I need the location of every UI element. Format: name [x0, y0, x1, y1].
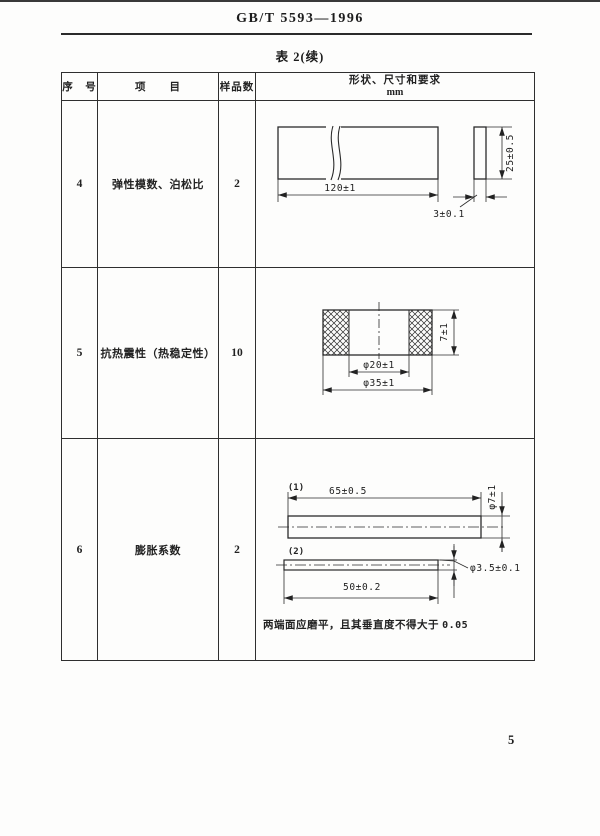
- header-cell-no: 序 号: [62, 73, 98, 101]
- standard-document-page: { "page": { "doc_number": "GB/T 5593—199…: [0, 0, 600, 836]
- header-rule: [61, 33, 532, 35]
- page-number: 5: [508, 733, 514, 748]
- table-title: 表 2(续): [0, 46, 600, 65]
- drawing-cell: (1) 65±0.5 φ7±1 (2): [256, 439, 535, 661]
- drawing-note: 两端面应磨平，且其垂直度不得大于 0.05: [263, 617, 468, 632]
- specimen-drawing-ring-section: 7±1 φ20±1 φ35±1: [256, 269, 534, 438]
- row-no: 5: [62, 268, 98, 439]
- row-item: 弹性模数、泊松比: [98, 101, 219, 268]
- table-row: 5 抗热震性（热稳定性） 10: [62, 268, 535, 439]
- dimension-label-thickness: 3±0.1: [433, 209, 465, 220]
- dimension-label-fig2-length: 50±0.2: [343, 582, 381, 593]
- specimen-drawing-bar: 120±1 25±0.5 3±0.1: [256, 102, 534, 267]
- dimension-label-length: 120±1: [324, 183, 356, 194]
- row-item: 膨胀系数: [98, 439, 219, 661]
- drawing-cell: 120±1 25±0.5 3±0.1: [256, 101, 535, 268]
- header-cell-shape: 形状、尺寸和要求 mm: [256, 73, 535, 101]
- figure-label-2: (2): [288, 547, 304, 557]
- dimension-label-fig1-length: 65±0.5: [329, 486, 367, 497]
- header-unit-label: mm: [256, 87, 534, 100]
- dimension-label-fig1-diameter: φ7±1: [487, 484, 498, 509]
- scan-edge-artifact: [0, 0, 600, 2]
- row-no: 4: [62, 101, 98, 268]
- header-shape-label: 形状、尺寸和要求: [256, 74, 534, 87]
- header-cell-item: 项 目: [98, 73, 219, 101]
- row-samples: 10: [219, 268, 256, 439]
- row-no: 6: [62, 439, 98, 661]
- row-item: 抗热震性（热稳定性）: [98, 268, 219, 439]
- drawing-note-value: 0.05: [442, 620, 468, 631]
- drawing-note-text: 两端面应磨平，且其垂直度不得大于: [263, 620, 439, 631]
- figure-label-1: (1): [288, 483, 304, 493]
- table-row: 6 膨胀系数 2 (1) 65±0.5: [62, 439, 535, 661]
- dimension-label-inner-diameter: φ20±1: [363, 360, 395, 371]
- row-samples: 2: [219, 101, 256, 268]
- table-header-row: 序 号 项 目 样品数 形状、尺寸和要求 mm: [62, 73, 535, 101]
- table-row: 4 弹性模数、泊松比 2 120±1: [62, 101, 535, 268]
- drawing-cell: 7±1 φ20±1 φ35±1: [256, 268, 535, 439]
- specimen-table: 序 号 项 目 样品数 形状、尺寸和要求 mm 4 弹性模数、泊松比 2: [61, 72, 535, 661]
- dimension-label-fig2-diameter: φ3.5±0.1: [470, 563, 521, 574]
- document-number: GB/T 5593—1996: [0, 11, 600, 27]
- row-samples: 2: [219, 439, 256, 661]
- dimension-label-height: 7±1: [439, 322, 450, 341]
- dimension-label-height: 25±0.5: [505, 134, 516, 172]
- dimension-label-outer-diameter: φ35±1: [363, 378, 395, 389]
- header-cell-samples: 样品数: [219, 73, 256, 101]
